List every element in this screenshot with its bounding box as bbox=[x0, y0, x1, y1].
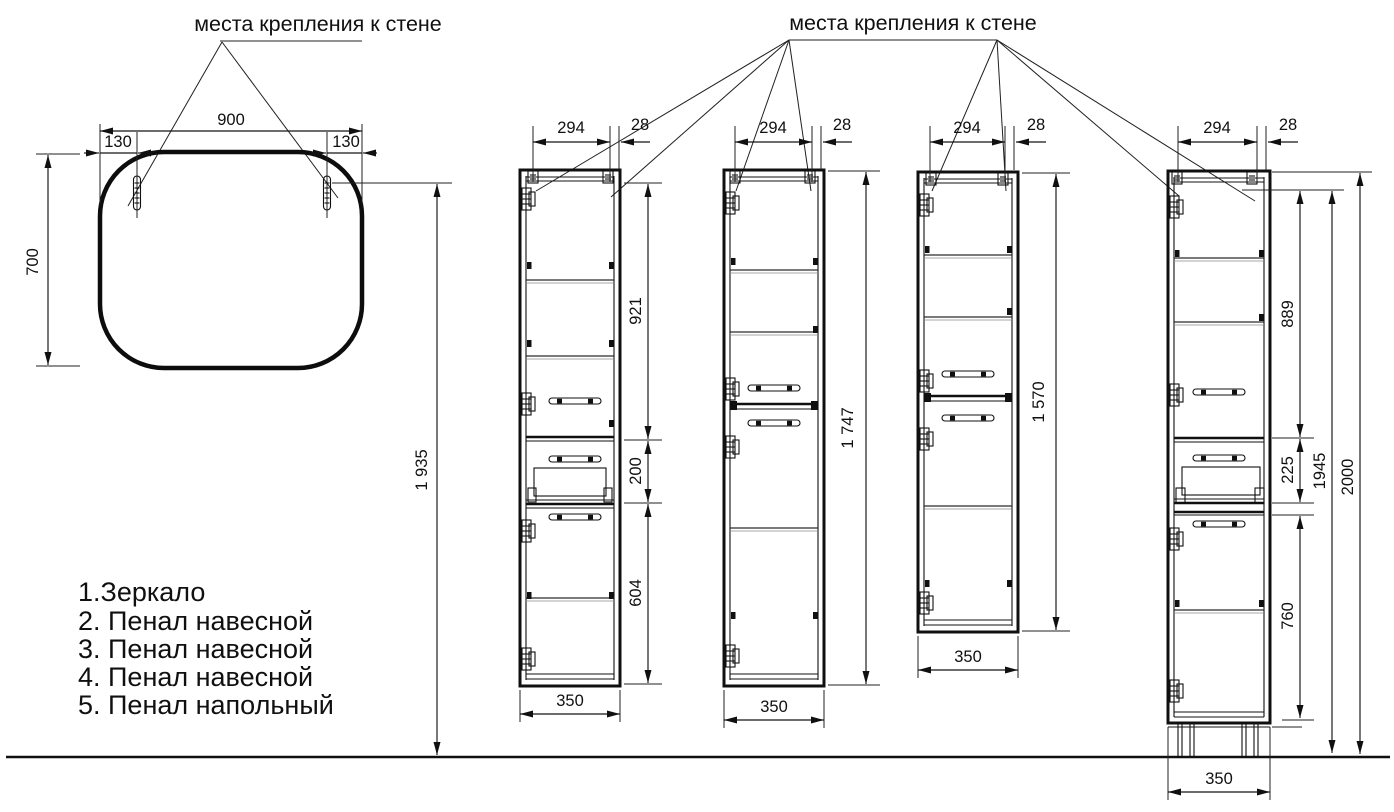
hinge-icon bbox=[726, 378, 739, 400]
dim-cab4-height: 1 570 bbox=[1030, 381, 1048, 422]
hinge-icon bbox=[920, 428, 933, 450]
legend-item-5: 5. Пенал напольный bbox=[78, 690, 334, 720]
dim-cab5-mount-inset: 28 bbox=[1279, 116, 1297, 134]
hinge-icon bbox=[522, 648, 535, 670]
dim-cab5-drawer: 225 bbox=[1279, 456, 1297, 484]
legend-item-1: 1.Зеркало bbox=[78, 577, 205, 607]
dim-cab5-upper: 889 bbox=[1279, 300, 1297, 328]
handle-icon bbox=[549, 514, 601, 520]
hinge-icon bbox=[522, 188, 535, 210]
hinge-icon bbox=[1170, 384, 1183, 406]
handle-icon bbox=[1193, 521, 1245, 527]
dim-cab2-upper: 921 bbox=[627, 297, 645, 325]
cabinet-3-wall bbox=[724, 170, 824, 686]
dim-cab2-drawer: 200 bbox=[627, 457, 645, 485]
handle-icon bbox=[748, 385, 800, 391]
cabinet-2-wall bbox=[520, 170, 620, 686]
dim-mirror-height: 700 bbox=[24, 248, 42, 276]
hinge-icon bbox=[1170, 528, 1183, 550]
dim-cab3-mount-inset: 28 bbox=[833, 116, 851, 134]
hinge-icon bbox=[522, 393, 535, 415]
wall-mount-label-left: места крепления к стене bbox=[194, 12, 442, 36]
dim-mirror-width: 900 bbox=[217, 111, 245, 129]
dim-cab2-mount-inset: 28 bbox=[631, 116, 649, 134]
shelf-pins bbox=[925, 246, 1012, 587]
hinge-icon bbox=[1170, 680, 1183, 702]
legend-item-3: 3. Пенал навесной bbox=[78, 634, 313, 664]
hinge-icon bbox=[726, 192, 739, 214]
hinge-icon bbox=[920, 592, 933, 614]
handle-icon bbox=[549, 398, 601, 404]
dim-mirror-hook-offset-left: 130 bbox=[104, 133, 132, 151]
dim-cab3-width: 350 bbox=[760, 698, 788, 716]
handle-icon bbox=[748, 420, 800, 426]
dim-cab5-width: 350 bbox=[1205, 770, 1233, 788]
mirror-hook-left-icon bbox=[134, 132, 141, 218]
cabinet-leg bbox=[1178, 723, 1194, 757]
dim-mirror-mount-height: 1 935 bbox=[413, 449, 431, 490]
dim-cab3-height: 1 747 bbox=[839, 407, 857, 448]
furniture-mounting-drawing: места крепления к стене места крепления … bbox=[0, 0, 1394, 812]
dim-cab3-mount-span: 294 bbox=[759, 119, 787, 137]
shelf-pins bbox=[1175, 250, 1264, 607]
legend-item-4: 4. Пенал навесной bbox=[78, 662, 313, 692]
mirror-item bbox=[100, 132, 362, 368]
drawing-canvas: места крепления к стене места крепления … bbox=[0, 0, 1394, 812]
cabinet-2-dimension-lines bbox=[520, 142, 650, 714]
hinge-icon bbox=[726, 645, 739, 667]
cabinet-5-floor bbox=[1168, 171, 1270, 757]
cabinet-leg bbox=[1242, 723, 1258, 757]
handle-icon bbox=[1193, 389, 1245, 395]
dim-mirror-hook-offset-right: 130 bbox=[332, 133, 360, 151]
dim-cab5-lower: 760 bbox=[1279, 602, 1297, 630]
hinge-icon bbox=[726, 436, 739, 458]
dim-cab4-mount-span: 294 bbox=[953, 119, 981, 137]
hinge-icon bbox=[920, 194, 933, 216]
hinge-icon bbox=[522, 520, 535, 542]
shelf-pins bbox=[731, 258, 818, 619]
handle-icon bbox=[1193, 455, 1245, 461]
dim-cab2-width: 350 bbox=[556, 692, 584, 710]
legend: 1.Зеркало 2. Пенал навесной 3. Пенал нав… bbox=[78, 577, 334, 720]
shelf-pins bbox=[527, 262, 614, 599]
handle-icon bbox=[549, 456, 601, 462]
hinge-icon bbox=[1170, 196, 1183, 218]
handle-icon bbox=[942, 415, 994, 421]
cabinet-4-wall bbox=[918, 172, 1018, 632]
dim-cab2-mount-span: 294 bbox=[557, 119, 585, 137]
dim-cab4-width: 350 bbox=[954, 648, 982, 666]
dim-cab5-body-height: 1945 bbox=[1311, 453, 1329, 490]
handle-icon bbox=[942, 371, 994, 377]
cabinet-2-extension-lines bbox=[520, 126, 662, 722]
hinge-icon bbox=[920, 370, 933, 392]
mirror-hook-right-icon bbox=[324, 132, 331, 218]
dim-cab5-mount-span: 294 bbox=[1203, 119, 1231, 137]
legend-item-2: 2. Пенал навесной bbox=[78, 606, 313, 636]
mirror-outline bbox=[100, 152, 362, 368]
dim-cab5-total-height: 2000 bbox=[1339, 459, 1357, 496]
dim-cab4-mount-inset: 28 bbox=[1027, 116, 1045, 134]
dim-cab2-lower: 604 bbox=[627, 579, 645, 607]
wall-mount-label-right: места крепления к стене bbox=[789, 11, 1037, 35]
